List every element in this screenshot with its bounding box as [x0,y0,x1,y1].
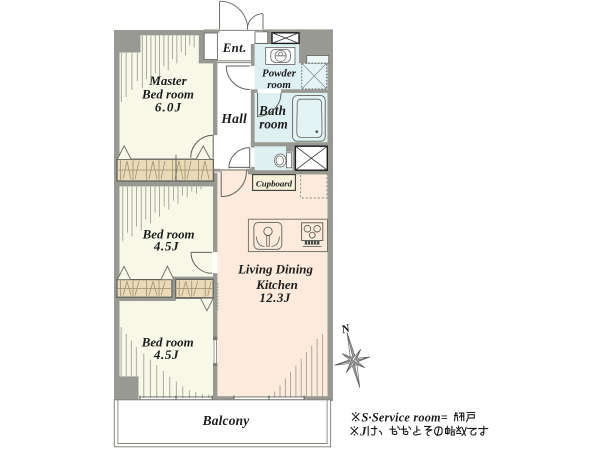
svg-text:Hall: Hall [220,111,247,126]
svg-text:Powder: Powder [262,68,297,80]
svg-text:6.0J: 6.0J [155,99,182,114]
svg-text:room: room [259,117,288,132]
svg-text:4.5J: 4.5J [153,238,179,253]
svg-text:Cupboard: Cupboard [256,178,293,188]
svg-text:S·Service room=: S·Service room= [362,410,449,424]
svg-text:4.5J: 4.5J [153,347,179,362]
svg-text:J: J [359,424,367,438]
svg-text:room: room [267,79,291,91]
svg-text:Balcony: Balcony [202,413,250,428]
svg-text:Master: Master [148,74,187,88]
svg-text:Ent.: Ent. [222,41,247,55]
svg-text:12.3J: 12.3J [259,290,290,305]
svg-text:Living Dining: Living Dining [237,262,313,276]
